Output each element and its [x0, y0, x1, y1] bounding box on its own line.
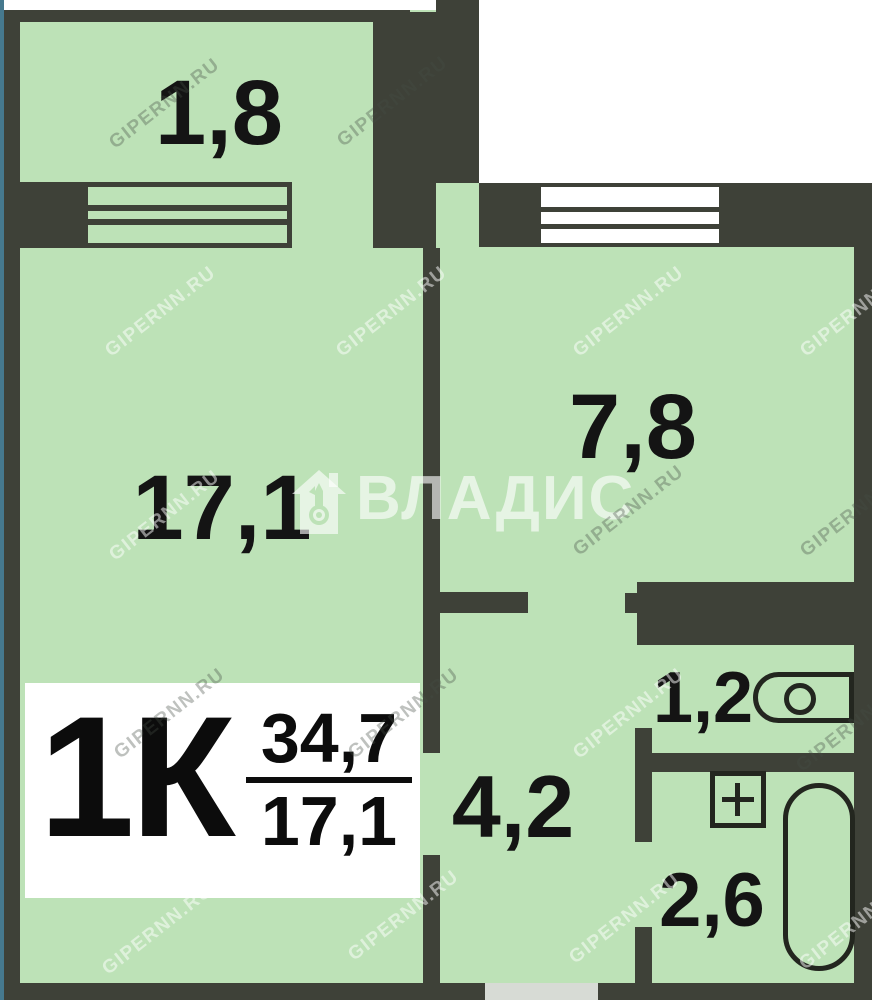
hallway-area-label: 4,2	[452, 763, 574, 851]
window-pane-line	[88, 205, 287, 211]
entrance-opening	[485, 983, 598, 1000]
wall-above-toilet	[637, 582, 854, 645]
wall-balcony-right	[373, 12, 436, 248]
balcony-window-icon	[83, 182, 292, 248]
house-key-icon	[292, 470, 346, 534]
wall-toilet-left	[635, 728, 652, 842]
window-pane	[541, 212, 719, 224]
window-pane	[541, 229, 719, 243]
flat-summary-box: 1К 34,7 17,1	[25, 683, 420, 898]
wall-left	[4, 10, 20, 1000]
living-area-value: 17,1	[244, 788, 414, 855]
left-edge-strip	[0, 0, 4, 1000]
outside-area	[479, 0, 872, 183]
wall-right	[854, 247, 872, 1000]
kitchen-area-label: 7,8	[569, 381, 697, 473]
wall-kitchen-hall	[440, 592, 528, 613]
wall-toilet-nub	[625, 593, 637, 613]
wall-top-block	[436, 0, 479, 183]
kitchen-window-icon	[541, 183, 719, 247]
wall-bottom	[4, 983, 872, 1000]
toilet-flush-circle-icon	[784, 683, 816, 715]
flat-type-label: 1К	[39, 691, 232, 863]
wall-balcony-sill	[20, 182, 85, 248]
window-pane-line	[88, 219, 287, 225]
balcony-area-label: 1,8	[155, 67, 283, 159]
brand-watermark-text: ВЛАДИС	[356, 468, 635, 530]
wall-balcony-top	[4, 10, 410, 22]
window-pane	[541, 187, 719, 207]
wall-bathroom-left	[635, 927, 652, 983]
sink-icon	[710, 771, 766, 828]
